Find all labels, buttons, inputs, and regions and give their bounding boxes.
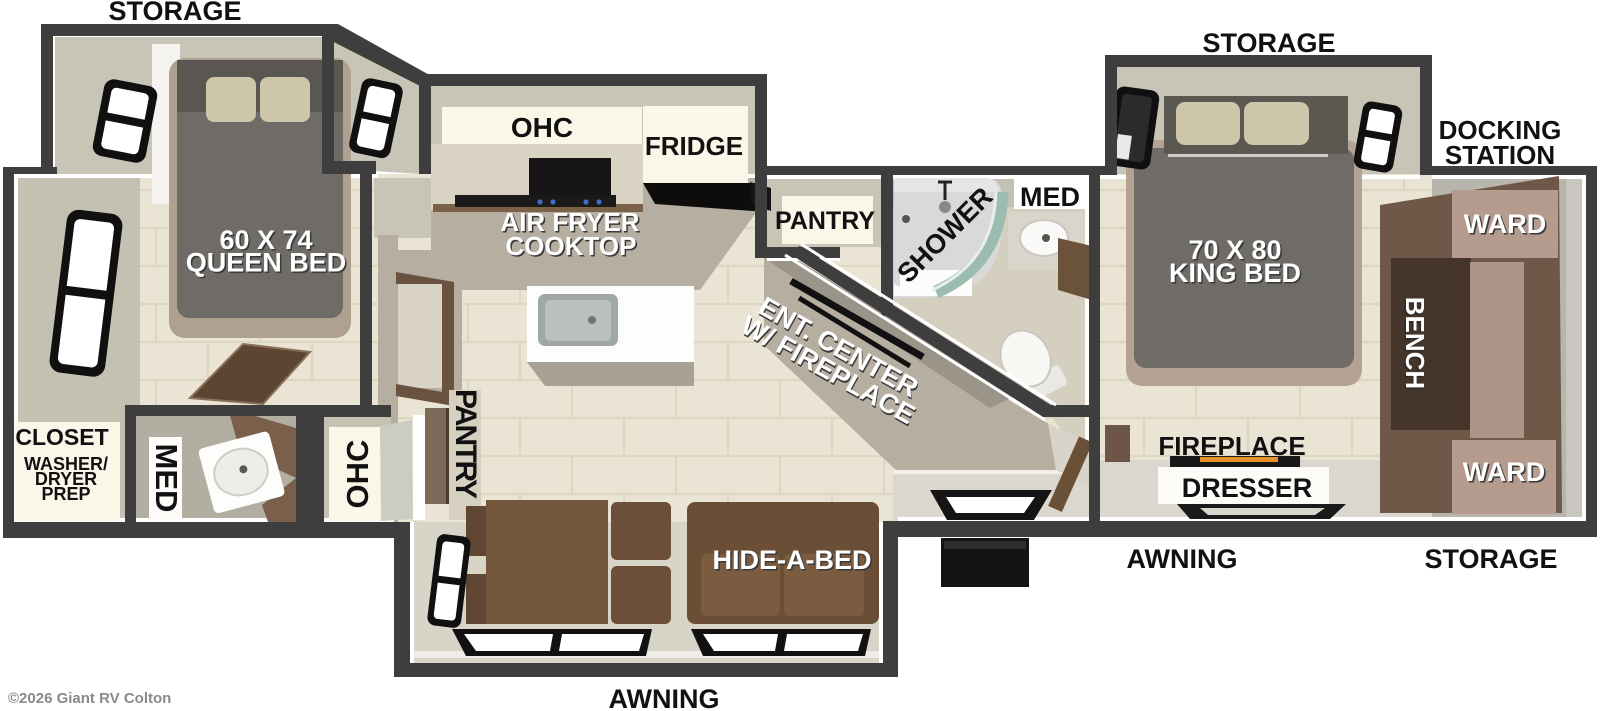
svg-text:STATION: STATION [1445,140,1555,170]
svg-text:DRESSER: DRESSER [1182,473,1313,503]
svg-text:AWNING: AWNING [1127,544,1238,574]
svg-text:©2026 Giant RV Colton: ©2026 Giant RV Colton [8,690,171,707]
svg-text:BENCH: BENCH [1400,297,1430,389]
svg-text:MED: MED [1020,182,1080,212]
svg-text:PANTRY: PANTRY [775,207,875,235]
svg-text:CLOSET: CLOSET [15,424,108,450]
svg-text:PANTRY: PANTRY [449,389,482,499]
svg-text:STORAGE: STORAGE [1202,28,1335,58]
svg-text:OHC: OHC [511,112,573,143]
svg-text:MED: MED [149,444,184,513]
svg-text:OHC: OHC [340,440,375,509]
svg-text:QUEEN BED: QUEEN BED [186,248,347,278]
svg-text:COOKTOP: COOKTOP [506,231,637,261]
svg-text:WARD: WARD [1463,457,1546,487]
svg-text:FIREPLACE: FIREPLACE [1158,431,1305,461]
svg-text:KING BED: KING BED [1169,258,1301,288]
svg-text:STORAGE: STORAGE [108,0,241,26]
svg-text:HIDE-A-BED: HIDE-A-BED [713,545,872,575]
svg-text:STORAGE: STORAGE [1424,544,1557,574]
svg-text:AWNING: AWNING [609,684,720,711]
svg-text:FRIDGE: FRIDGE [645,131,743,161]
svg-text:PREP: PREP [41,484,90,504]
svg-text:WARD: WARD [1464,209,1547,239]
